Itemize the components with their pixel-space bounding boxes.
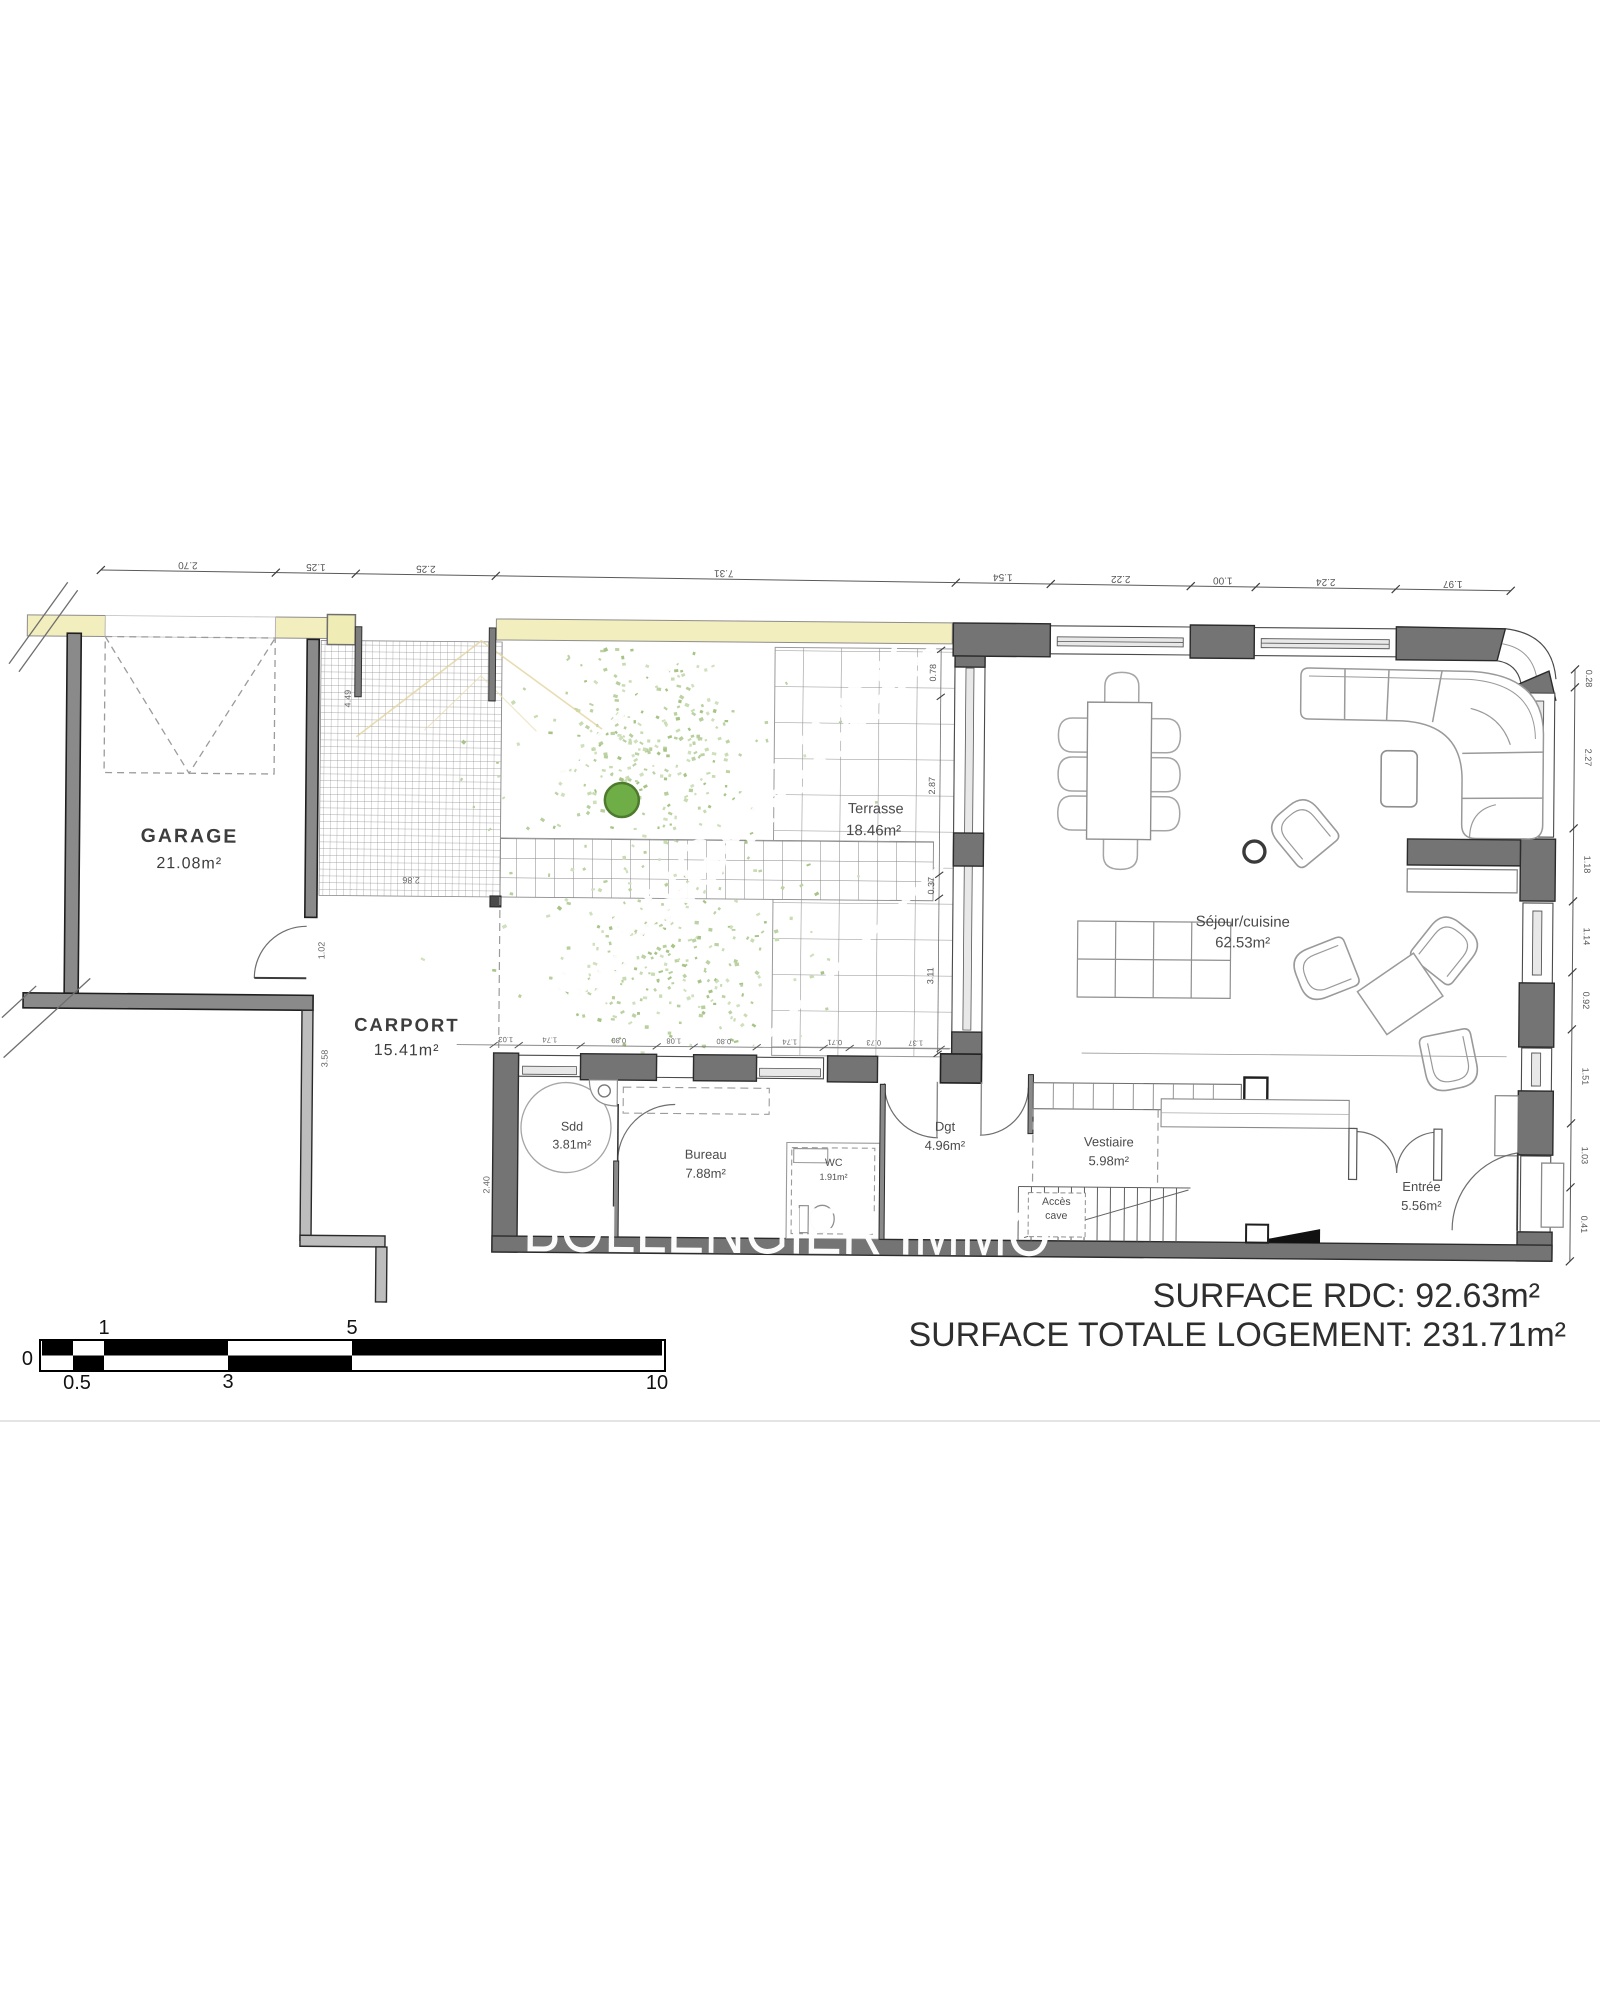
svg-text:0.80: 0.80 xyxy=(611,1036,626,1045)
svg-text:2.87: 2.87 xyxy=(927,777,937,795)
svg-text:1.02: 1.02 xyxy=(316,942,326,960)
svg-text:7.88m²: 7.88m² xyxy=(685,1166,726,1181)
svg-text:5.56m²: 5.56m² xyxy=(1401,1198,1442,1213)
svg-text:0.41: 0.41 xyxy=(1579,1216,1589,1234)
svg-text:5.98m²: 5.98m² xyxy=(1088,1153,1129,1168)
svg-text:SURFACE TOTALE LOGEMENT: 231.7: SURFACE TOTALE LOGEMENT: 231.71m² xyxy=(908,1316,1566,1354)
svg-text:1.54: 1.54 xyxy=(993,571,1013,582)
svg-text:1.91m²: 1.91m² xyxy=(820,1172,848,1182)
svg-text:1.25: 1.25 xyxy=(306,561,326,572)
svg-text:2.24: 2.24 xyxy=(1316,576,1336,587)
svg-text:2.25: 2.25 xyxy=(416,563,436,574)
svg-text:1.00: 1.00 xyxy=(1213,574,1233,585)
svg-text:0.92: 0.92 xyxy=(1581,992,1591,1010)
svg-text:WC: WC xyxy=(825,1157,843,1169)
svg-text:3.58: 3.58 xyxy=(320,1050,330,1068)
svg-text:1.08: 1.08 xyxy=(666,1036,681,1045)
svg-text:1.03: 1.03 xyxy=(1580,1147,1590,1165)
svg-text:0: 0 xyxy=(22,1348,33,1370)
svg-text:1.14: 1.14 xyxy=(1582,928,1592,946)
svg-text:1.97: 1.97 xyxy=(1443,578,1463,589)
svg-text:1.03: 1.03 xyxy=(498,1035,513,1044)
svg-text:1.74: 1.74 xyxy=(782,1037,797,1046)
svg-text:5: 5 xyxy=(346,1317,357,1339)
svg-text:0.71: 0.71 xyxy=(827,1038,842,1047)
svg-text:4.96m²: 4.96m² xyxy=(925,1138,966,1153)
svg-text:15.41m²: 15.41m² xyxy=(374,1042,440,1060)
svg-text:Vestiaire: Vestiaire xyxy=(1084,1134,1134,1149)
svg-text:2.70: 2.70 xyxy=(178,559,198,570)
svg-text:0.78: 0.78 xyxy=(928,664,938,682)
svg-text:0.5: 0.5 xyxy=(63,1372,91,1394)
svg-text:0.73: 0.73 xyxy=(866,1038,881,1047)
svg-text:0.37: 0.37 xyxy=(926,877,936,895)
svg-text:0.80: 0.80 xyxy=(716,1037,731,1046)
svg-text:BOLLENGIER IMMO: BOLLENGIER IMMO xyxy=(523,1191,1052,1270)
svg-text:21.08m²: 21.08m² xyxy=(156,855,222,873)
svg-text:2.22: 2.22 xyxy=(1111,573,1131,584)
svg-text:CARPORT: CARPORT xyxy=(354,1014,460,1036)
svg-text:Séjour/cuisine: Séjour/cuisine xyxy=(1196,913,1290,931)
svg-text:2.40: 2.40 xyxy=(481,1176,491,1194)
svg-text:Bureau: Bureau xyxy=(685,1147,727,1162)
svg-text:18.46m²: 18.46m² xyxy=(846,822,901,839)
svg-text:62.53m²: 62.53m² xyxy=(1215,934,1270,951)
svg-text:Sdd: Sdd xyxy=(561,1120,583,1134)
svg-text:1: 1 xyxy=(98,1317,109,1339)
svg-text:3: 3 xyxy=(222,1371,233,1393)
svg-text:2.27: 2.27 xyxy=(1583,749,1593,767)
svg-text:GARAGE: GARAGE xyxy=(141,825,239,848)
svg-text:Terrasse: Terrasse xyxy=(848,801,904,817)
svg-text:0.28: 0.28 xyxy=(1584,670,1594,688)
svg-text:1.37: 1.37 xyxy=(908,1039,923,1048)
svg-text:3.11: 3.11 xyxy=(925,967,935,984)
svg-text:4.49: 4.49 xyxy=(343,690,353,708)
svg-text:SURFACE RDC: 92.63m²: SURFACE RDC: 92.63m² xyxy=(1153,1277,1540,1315)
svg-text:Dgt: Dgt xyxy=(935,1119,956,1134)
svg-text:7.31: 7.31 xyxy=(714,567,734,578)
svg-text:2.86: 2.86 xyxy=(402,875,420,885)
svg-text:1.18: 1.18 xyxy=(1582,856,1592,874)
svg-text:1.51: 1.51 xyxy=(1580,1068,1590,1086)
svg-text:10: 10 xyxy=(646,1372,668,1394)
svg-text:Entrée: Entrée xyxy=(1402,1179,1440,1194)
svg-text:3.81m²: 3.81m² xyxy=(552,1137,591,1151)
svg-text:1.74: 1.74 xyxy=(542,1035,557,1044)
